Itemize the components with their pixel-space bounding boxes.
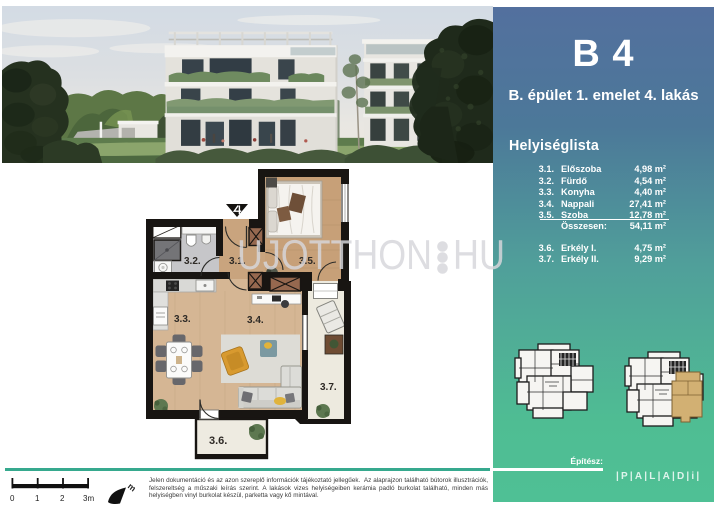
svg-text:0: 0	[10, 494, 15, 503]
svg-text:1: 1	[35, 494, 40, 503]
svg-text:3.2.: 3.2.	[184, 256, 201, 267]
svg-text:3.3.: 3.3.	[174, 314, 191, 325]
svg-text:3.4.: 3.4.	[247, 315, 264, 326]
svg-text:m: m	[126, 481, 138, 494]
svg-text:3.6.: 3.6.	[209, 435, 227, 447]
svg-text:2: 2	[60, 494, 65, 503]
svg-text:UJOTTHON: UJOTTHON	[237, 231, 432, 278]
svg-text:3.5.: 3.5.	[299, 256, 316, 267]
svg-text:3m: 3m	[83, 494, 94, 503]
svg-text:3.1.: 3.1.	[229, 256, 246, 267]
svg-text:3.7.: 3.7.	[320, 382, 337, 393]
